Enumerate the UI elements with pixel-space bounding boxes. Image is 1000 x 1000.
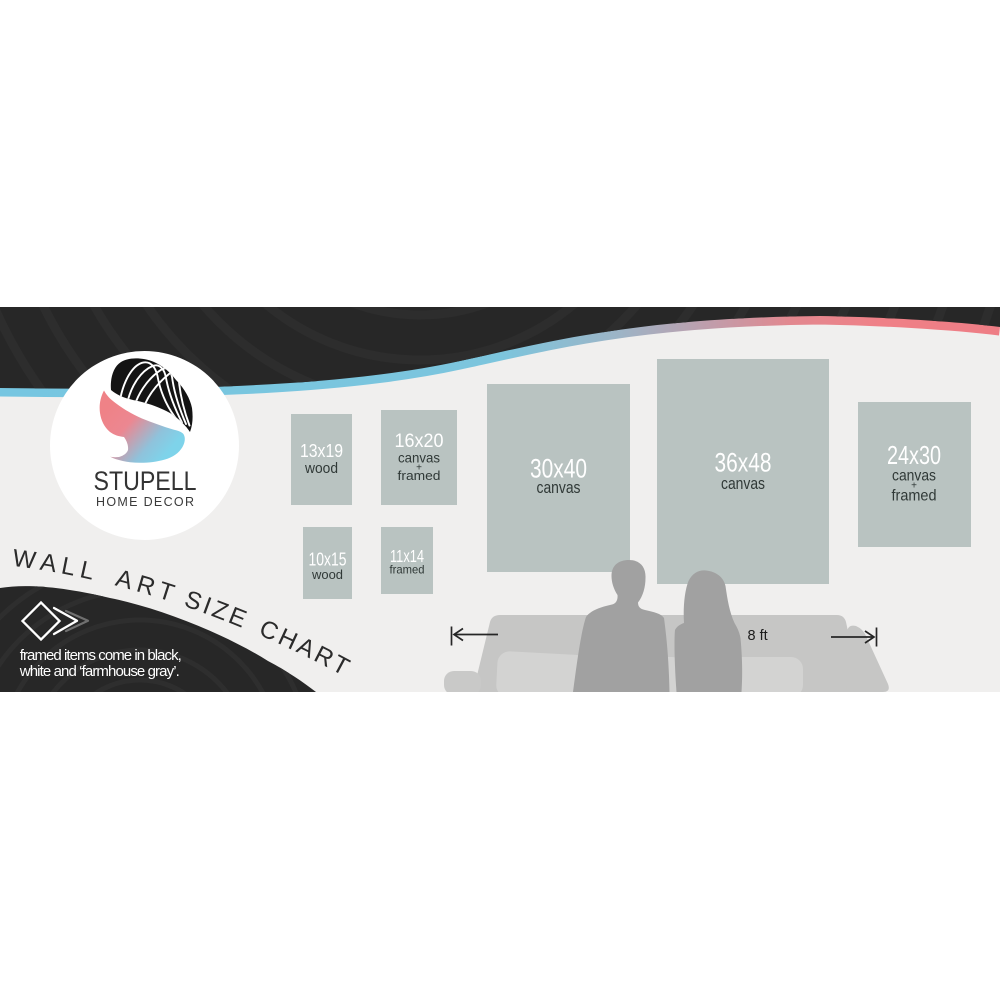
svg-text:canvas: canvas — [537, 479, 581, 497]
svg-text:canvas: canvas — [721, 475, 765, 493]
svg-text:13x19: 13x19 — [300, 441, 343, 461]
svg-text:framed: framed — [892, 488, 937, 505]
svg-text:wood: wood — [304, 461, 338, 477]
svg-text:wood: wood — [311, 567, 343, 582]
svg-text:24x30: 24x30 — [887, 440, 941, 470]
svg-text:framed: framed — [390, 563, 425, 577]
svg-text:HOME DECOR: HOME DECOR — [96, 495, 194, 509]
svg-text:36x48: 36x48 — [715, 448, 772, 478]
svg-text:framed items come in black,: framed items come in black, — [20, 647, 182, 664]
svg-text:white and ‘farmhouse gray’.: white and ‘farmhouse gray’. — [19, 663, 180, 680]
svg-text:framed: framed — [398, 468, 441, 483]
svg-text:8 ft: 8 ft — [748, 628, 768, 644]
svg-text:STUPELL: STUPELL — [94, 466, 197, 496]
